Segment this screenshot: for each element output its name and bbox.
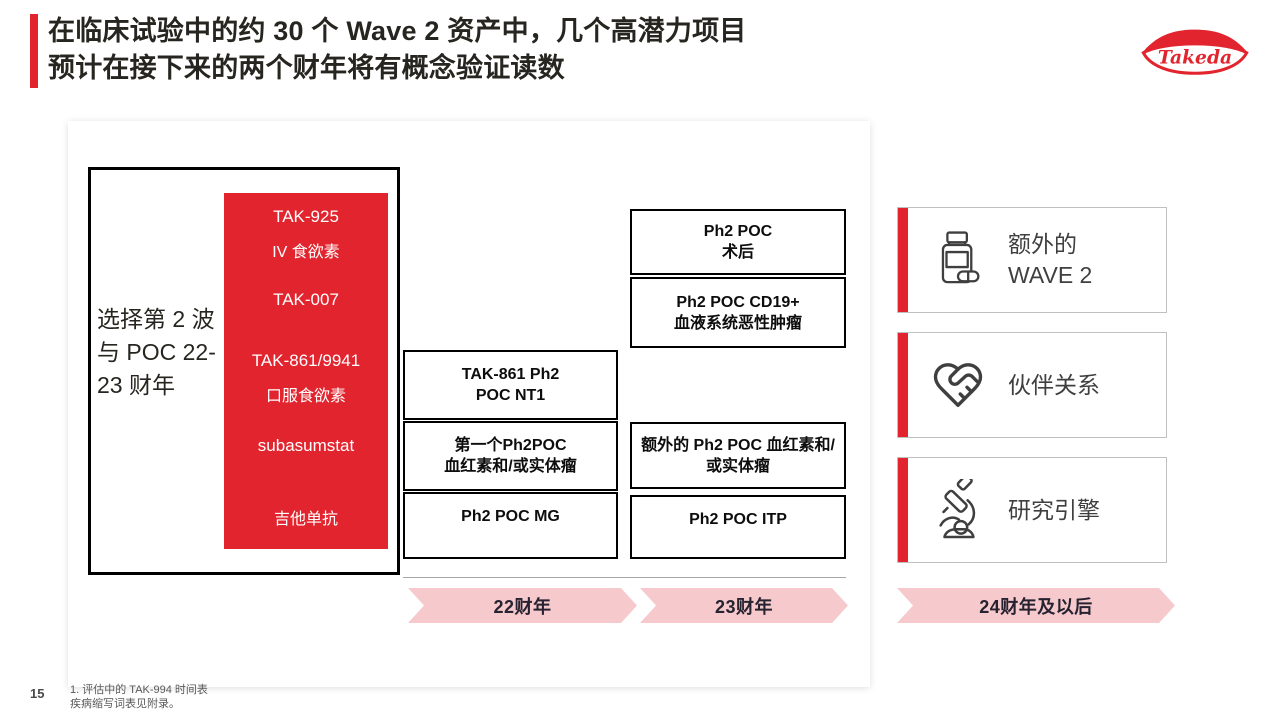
milestone-box-itp: Ph2 POC ITP — [630, 495, 846, 559]
footnote: 1. 评估中的 TAK-994 时间表 疾病缩写词表见附录。 — [70, 683, 208, 711]
pill-bottle-icon — [908, 230, 1008, 290]
card-label-line: WAVE 2 — [1008, 260, 1092, 291]
milestone-box-first-ph2poc: 第一个Ph2POC 血红素和/或实体瘤 — [403, 421, 618, 491]
asset-item: TAK-861/9941 — [224, 351, 388, 371]
card-label: 研究引擎 — [1008, 495, 1100, 526]
asset-item: 吉他单抗 — [224, 505, 388, 529]
asset-item: TAK-007 — [224, 290, 388, 310]
takeda-logo-icon: Takeda — [1138, 26, 1252, 76]
wave2-selection-label: 选择第 2 波 与 POC 22- 23 财年 — [97, 303, 229, 402]
card-label: 伙伴关系 — [1008, 370, 1100, 401]
asset-item: subasumstat — [224, 436, 388, 456]
card-label-line: 伙伴关系 — [1008, 370, 1100, 401]
milestone-line: TAK-861 Ph2 — [462, 364, 560, 385]
milestone-line: Ph2 POC ITP — [689, 509, 787, 530]
title-line-2: 预计在接下来的两个财年将有概念验证读数 — [48, 50, 747, 87]
footnote-line-1: 1. 评估中的 TAK-994 时间表 — [70, 683, 208, 697]
slide: 在临床试验中的约 30 个 Wave 2 资产中，几个高潜力项目 预计在接下来的… — [0, 0, 1280, 720]
timeline-label-fy23: 23财年 — [715, 593, 773, 619]
wave2-assets-panel: TAK-925 IV 食欲素 TAK-007 TAK-861/9941 口服食欲… — [224, 193, 388, 549]
milestone-box-additional-ph2poc: 额外的 Ph2 POC 血红素和/ 或实体瘤 — [630, 422, 846, 489]
card-accent-bar — [898, 458, 908, 562]
milestone-line: 术后 — [722, 242, 754, 263]
milestone-box-mg: Ph2 POC MG — [403, 492, 618, 559]
title-line-1: 在临床试验中的约 30 个 Wave 2 资产中，几个高潜力项目 — [48, 13, 747, 50]
milestone-box-cd19: Ph2 POC CD19+ 血液系统恶性肿瘤 — [630, 277, 846, 348]
milestone-line: 或实体瘤 — [706, 456, 770, 477]
milestone-line: 额外的 Ph2 POC 血红素和/ — [641, 435, 835, 456]
future-card-partnerships: 伙伴关系 — [897, 332, 1167, 438]
milestone-line: Ph2 POC MG — [461, 506, 560, 527]
title-accent-bar — [30, 14, 38, 88]
footnote-line-2: 疾病缩写词表见附录。 — [70, 697, 208, 711]
milestone-line: POC NT1 — [476, 385, 545, 406]
selection-label-line-1: 选择第 2 波 — [97, 303, 229, 336]
card-label-line: 额外的 — [1008, 229, 1092, 260]
timeline-chevron-fy22: 22财年 — [408, 588, 637, 623]
future-card-additional-wave2: 额外的 WAVE 2 — [897, 207, 1167, 313]
takeda-logo-text: Takeda — [1158, 46, 1232, 68]
milestone-line: 血红素和/或实体瘤 — [444, 456, 576, 477]
card-accent-bar — [898, 333, 908, 437]
page-title: 在临床试验中的约 30 个 Wave 2 资产中，几个高潜力项目 预计在接下来的… — [48, 13, 747, 87]
handshake-heart-icon — [908, 358, 1008, 412]
page-number: 15 — [30, 686, 44, 701]
timeline-rule — [403, 577, 846, 578]
timeline-label-fy22: 22财年 — [493, 593, 551, 619]
milestone-line: Ph2 POC — [704, 221, 772, 242]
milestone-line: 血液系统恶性肿瘤 — [674, 313, 802, 334]
card-accent-bar — [898, 208, 908, 312]
timeline-label-fy24: 24财年及以后 — [979, 593, 1093, 619]
milestone-line: 第一个Ph2POC — [454, 435, 566, 456]
timeline-chevron-fy23: 23财年 — [640, 588, 848, 623]
milestone-box-postop: Ph2 POC 术后 — [630, 209, 846, 275]
milestone-box-tak861-nt1: TAK-861 Ph2 POC NT1 — [403, 350, 618, 420]
timeline-chevron-fy24: 24财年及以后 — [897, 588, 1175, 623]
takeda-logo: Takeda — [1138, 26, 1252, 81]
card-label-line: 研究引擎 — [1008, 495, 1100, 526]
milestone-line: Ph2 POC CD19+ — [676, 292, 799, 313]
asset-item: 口服食欲素 — [224, 382, 388, 406]
selection-label-line-3: 23 财年 — [97, 369, 229, 402]
selection-label-line-2: 与 POC 22- — [97, 336, 229, 369]
asset-item: IV 食欲素 — [224, 238, 388, 262]
card-label: 额外的 WAVE 2 — [1008, 229, 1092, 291]
asset-item: TAK-925 — [224, 207, 388, 227]
microscope-icon — [908, 479, 1008, 541]
future-card-research-engine: 研究引擎 — [897, 457, 1167, 563]
